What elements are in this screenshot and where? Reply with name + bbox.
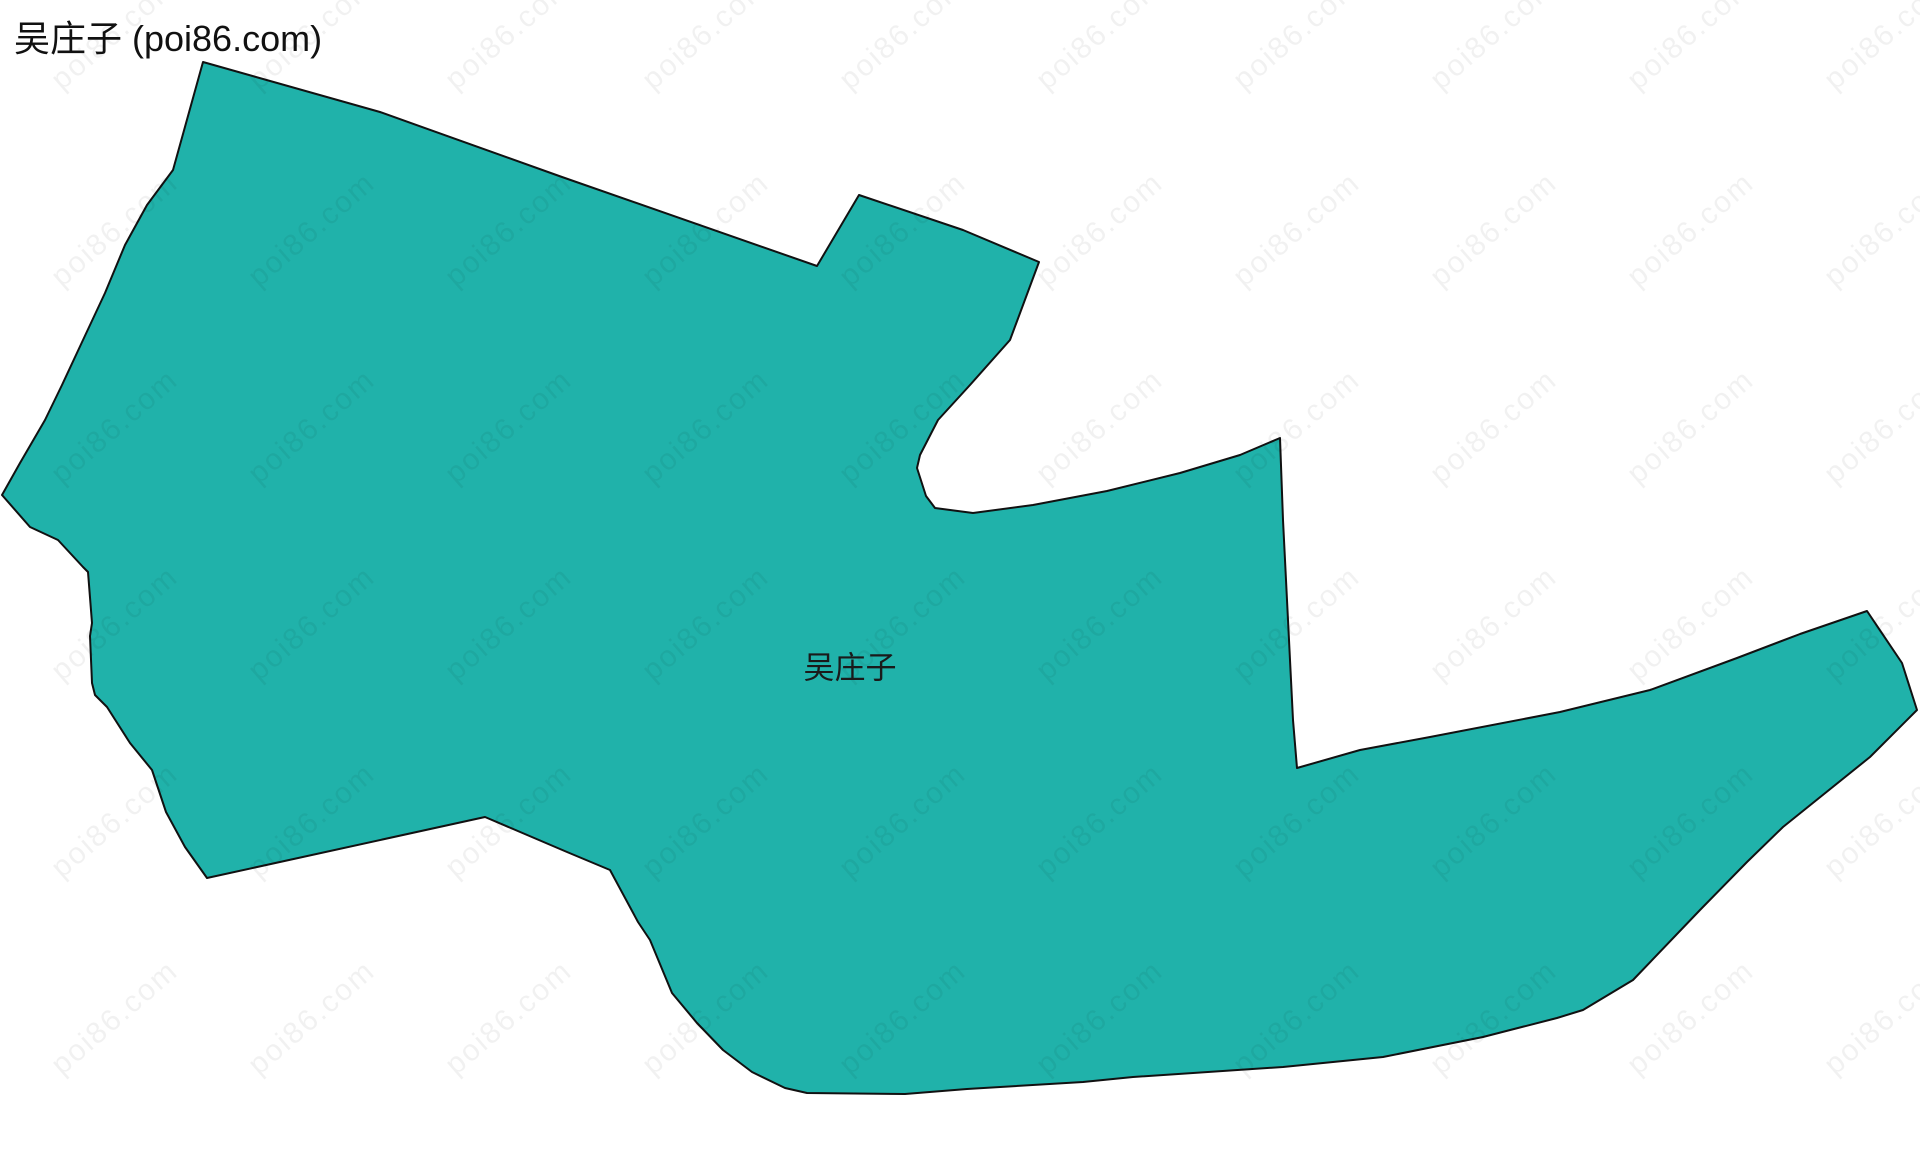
- region-polygon[interactable]: [2, 62, 1917, 1094]
- region-label: 吴庄子: [804, 643, 897, 688]
- region-map: [0, 0, 1920, 1158]
- map-page: poi86.compoi86.compoi86.compoi86.compoi8…: [0, 0, 1920, 1158]
- page-title: 吴庄子 (poi86.com): [14, 10, 322, 62]
